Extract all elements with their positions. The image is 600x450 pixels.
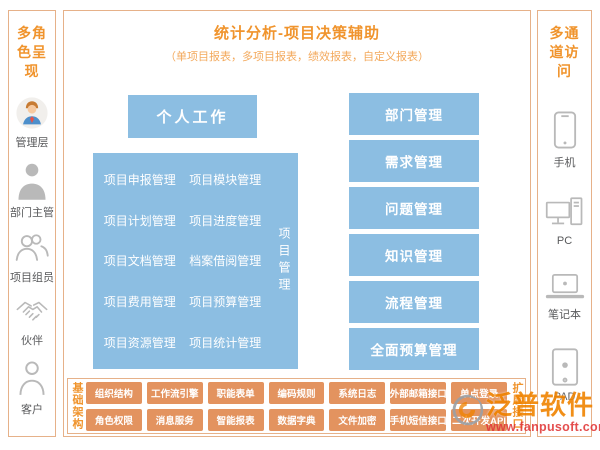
role-item-department-head: 部门主管 bbox=[10, 160, 54, 220]
smartphone-icon bbox=[553, 110, 577, 150]
watermark-url[interactable]: www.fanpusoft.com bbox=[486, 420, 600, 434]
project-module[interactable]: 项目文档管理 bbox=[104, 252, 176, 269]
module-budget-mgmt[interactable]: 全面预算管理 bbox=[349, 328, 479, 370]
channel-item-laptop: 笔记本 bbox=[545, 272, 585, 322]
role-item-manager: 管理层 bbox=[15, 96, 49, 150]
project-module[interactable]: 项目统计管理 bbox=[189, 334, 261, 351]
project-module[interactable]: 项目计划管理 bbox=[104, 212, 176, 229]
module-knowledge-mgmt[interactable]: 知识管理 bbox=[349, 234, 479, 276]
foundation-btn-message-service[interactable]: 消息服务 bbox=[147, 409, 203, 431]
fanpu-logo-icon bbox=[449, 392, 485, 428]
role-label: 部门主管 bbox=[10, 204, 54, 220]
role-label: 管理层 bbox=[16, 134, 49, 150]
fanpu-watermark: 泛普软件 www.fanpusoft.com bbox=[449, 392, 600, 434]
role-item-customer: 客户 bbox=[16, 359, 48, 417]
foundation-btn-workflow-engine[interactable]: 工作流引擎 bbox=[147, 382, 203, 404]
channel-item-mobile: 手机 bbox=[553, 110, 577, 170]
page-subtitle: （单项目报表，多项目报表，绩效报表，自定义报表） bbox=[64, 48, 530, 64]
team-members-icon bbox=[13, 231, 51, 265]
laptop-icon bbox=[545, 272, 585, 302]
main-architecture-panel: 统计分析-项目决策辅助 （单项目报表，多项目报表，绩效报表，自定义报表） 个人工… bbox=[63, 10, 531, 437]
foundation-btn-sms-interface[interactable]: 手机短信接口 bbox=[390, 409, 446, 431]
channel-label: 手机 bbox=[554, 154, 576, 170]
foundation-btn-file-encryption[interactable]: 文件加密 bbox=[329, 409, 385, 431]
module-department-mgmt[interactable]: 部门管理 bbox=[349, 93, 479, 135]
channel-item-pc: PC bbox=[545, 195, 585, 247]
manager-avatar-icon bbox=[15, 96, 49, 130]
foundation-btn-coding-rules[interactable]: 编码规则 bbox=[269, 382, 325, 404]
foundation-btn-function-forms[interactable]: 职能表单 bbox=[208, 382, 264, 404]
project-module-grid: 项目申报管理 项目模块管理 项目计划管理 项目进度管理 项目文档管理 档案借阅管… bbox=[97, 159, 268, 363]
project-module[interactable]: 项目费用管理 bbox=[104, 293, 176, 310]
module-requirement-mgmt[interactable]: 需求管理 bbox=[349, 140, 479, 182]
foundation-btn-org-structure[interactable]: 组织结构 bbox=[86, 382, 142, 404]
project-management-box: 项目申报管理 项目模块管理 项目计划管理 项目进度管理 项目文档管理 档案借阅管… bbox=[93, 153, 298, 369]
foundation-vertical-label: 基础架构 bbox=[71, 382, 82, 430]
project-management-vertical-label: 项目管理 bbox=[276, 227, 293, 295]
role-label: 项目组员 bbox=[10, 269, 54, 285]
multi-channel-sidebar: 多通道访问 手机 bbox=[537, 10, 592, 437]
right-sidebar-title: 多通道访问 bbox=[543, 24, 587, 81]
foundation-btn-system-logs[interactable]: 系统日志 bbox=[329, 382, 385, 404]
project-module[interactable]: 档案借阅管理 bbox=[189, 252, 261, 269]
foundation-btn-smart-reports[interactable]: 智能报表 bbox=[208, 409, 264, 431]
channel-list: 手机 PC bbox=[538, 81, 591, 436]
department-head-icon bbox=[14, 160, 50, 200]
role-item-team-member: 项目组员 bbox=[10, 231, 54, 285]
module-column: 部门管理 需求管理 问题管理 知识管理 流程管理 全面预算管理 bbox=[349, 93, 479, 370]
partner-handshake-icon bbox=[13, 296, 51, 328]
diagram-canvas: 多角色呈现 管理层 bbox=[0, 0, 600, 450]
customer-icon bbox=[16, 359, 48, 397]
watermark-brand: 泛普软件 bbox=[486, 392, 600, 419]
role-item-partner: 伙伴 bbox=[13, 296, 51, 348]
module-process-mgmt[interactable]: 流程管理 bbox=[349, 281, 479, 323]
module-personal-work[interactable]: 个人工作 bbox=[128, 95, 257, 138]
channel-label: PC bbox=[557, 235, 572, 247]
project-module[interactable]: 项目模块管理 bbox=[189, 171, 261, 188]
foundation-button-grid: 组织结构 工作流引擎 职能表单 编码规则 系统日志 外部邮箱接口 单点登录 角色… bbox=[85, 382, 508, 431]
tablet-icon bbox=[551, 347, 579, 387]
role-list: 管理层 部门主管 bbox=[9, 81, 55, 436]
role-label: 伙伴 bbox=[21, 332, 43, 348]
left-sidebar-title: 多角色呈现 bbox=[10, 24, 54, 81]
multi-role-sidebar: 多角色呈现 管理层 bbox=[8, 10, 56, 437]
foundation-btn-role-permission[interactable]: 角色权限 bbox=[86, 409, 142, 431]
project-module[interactable]: 项目进度管理 bbox=[189, 212, 261, 229]
project-module[interactable]: 项目资源管理 bbox=[104, 334, 176, 351]
watermark-text: 泛普软件 www.fanpusoft.com bbox=[486, 392, 600, 434]
role-label: 客户 bbox=[21, 401, 43, 417]
page-title: 统计分析-项目决策辅助 bbox=[64, 22, 530, 43]
module-issue-mgmt[interactable]: 问题管理 bbox=[349, 187, 479, 229]
project-module[interactable]: 项目申报管理 bbox=[104, 171, 176, 188]
foundation-btn-external-mail[interactable]: 外部邮箱接口 bbox=[390, 382, 446, 404]
foundation-btn-data-dictionary[interactable]: 数据字典 bbox=[269, 409, 325, 431]
channel-label: 笔记本 bbox=[548, 306, 581, 322]
project-module[interactable]: 项目预算管理 bbox=[189, 293, 261, 310]
desktop-pc-icon bbox=[545, 195, 585, 231]
